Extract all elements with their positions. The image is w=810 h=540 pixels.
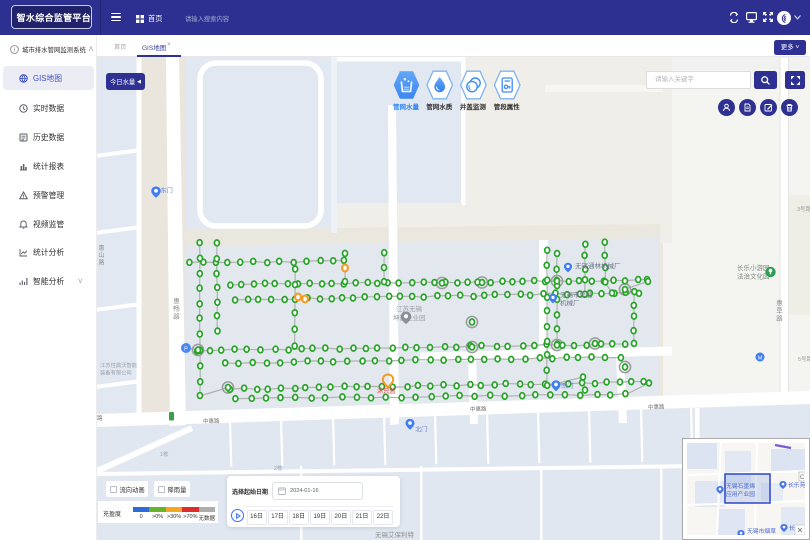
svg-text:3号路: 3号路 [797, 205, 810, 213]
svg-text:无锡通林机械厂: 无锡通林机械厂 [575, 261, 621, 270]
svg-text:无锡艾保利特: 无锡艾保利特 [375, 530, 415, 539]
svg-text:东门: 东门 [161, 187, 173, 195]
svg-text:M: M [758, 355, 763, 361]
svg-text:南门: 南门 [561, 382, 573, 390]
svg-text:i: i [14, 48, 15, 54]
svg-text:机械厂: 机械厂 [560, 298, 580, 307]
svg-text:无锡石墨烯: 无锡石墨烯 [726, 482, 755, 490]
svg-text:惠畅路: 惠畅路 [173, 296, 180, 320]
svg-text:江苏性鼎沃智能: 江苏性鼎沃智能 [100, 361, 138, 369]
svg-text:应用产业园: 应用产业园 [726, 490, 755, 498]
svg-text:沐只蓝: 沐只蓝 [377, 387, 396, 395]
svg-text:惠草路: 惠草路 [776, 298, 783, 322]
svg-text:无锡市恒通: 无锡市恒通 [560, 290, 593, 299]
svg-text:5号路: 5号路 [798, 355, 810, 363]
svg-text:北门: 北门 [415, 426, 427, 434]
svg-text:江苏无锡: 江苏无锡 [396, 304, 423, 313]
svg-text:P: P [184, 347, 188, 353]
svg-text:装备有限公司: 装备有限公司 [100, 369, 132, 377]
svg-text:无锡市烟草: 无锡市烟草 [747, 527, 776, 535]
svg-text:长乐小游园: 长乐小游园 [737, 263, 770, 272]
svg-text:长乐苑: 长乐苑 [788, 481, 805, 489]
svg-text:1栋: 1栋 [160, 450, 169, 458]
svg-text:C: C [800, 475, 805, 481]
svg-text:路: 路 [97, 414, 103, 422]
svg-text:法治文化园: 法治文化园 [737, 272, 770, 281]
svg-text:2栋: 2栋 [274, 464, 283, 472]
svg-text:惠山路: 惠山路 [98, 244, 104, 266]
